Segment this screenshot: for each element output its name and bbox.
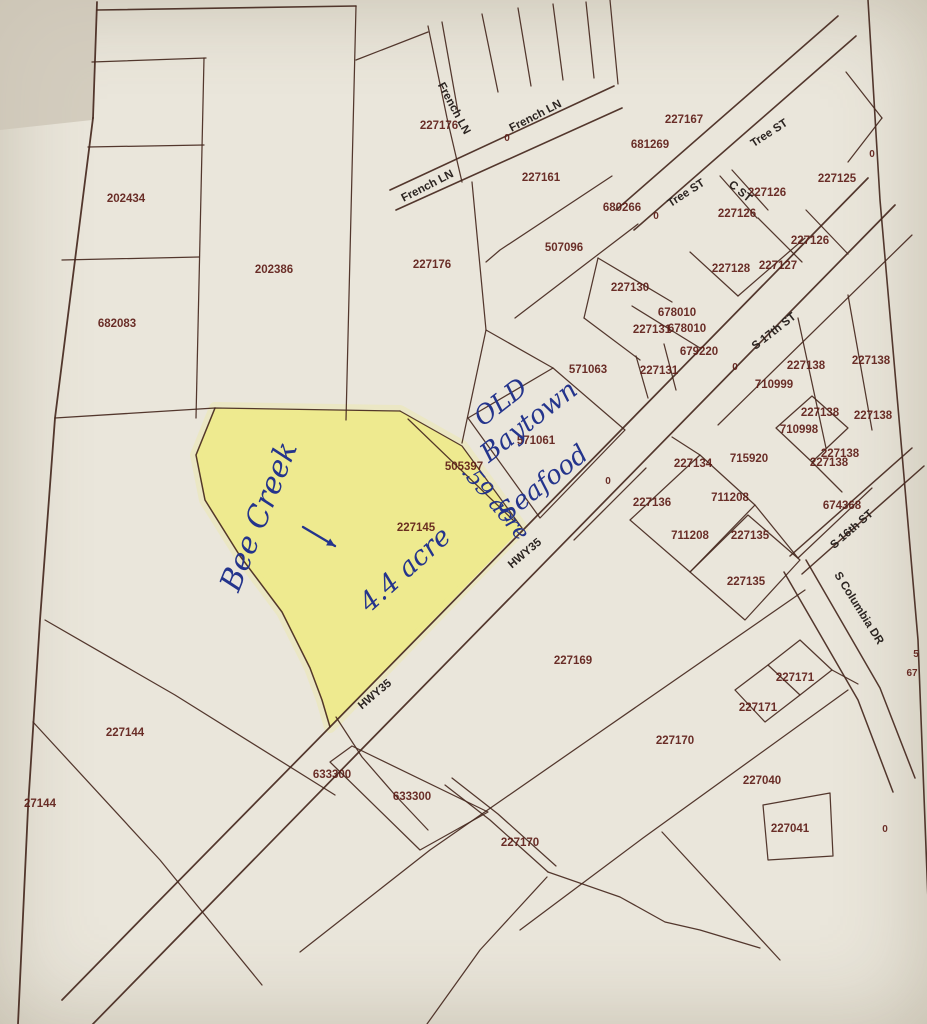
parcel-label: 227126 — [791, 235, 829, 247]
parcel-label: 227128 — [712, 263, 751, 275]
parcel-label: 711208 — [671, 530, 709, 542]
parcel-label: 710999 — [755, 379, 793, 391]
parcel-label: 678010 — [658, 307, 696, 319]
parcel-label: 0 — [653, 211, 659, 222]
parcel-label: 227131 — [633, 324, 672, 336]
parcel-label: 715920 — [730, 453, 768, 465]
parcel-boundary — [486, 330, 553, 368]
parcel-boundary — [832, 670, 858, 684]
parcel-label: 507096 — [545, 242, 583, 254]
parcel-label: 0 — [504, 133, 510, 144]
parcel-label: 227041 — [771, 823, 810, 835]
street-label: Tree ST — [666, 177, 707, 210]
parcel-label: 679220 — [680, 346, 718, 358]
parcel-label: 678010 — [668, 323, 706, 335]
parcel-boundary — [586, 2, 594, 78]
parcel-label: 227134 — [674, 458, 713, 470]
parcel-label: 227176 — [420, 120, 458, 132]
parcel-label: 227161 — [522, 172, 561, 184]
parcel-label: 227131 — [640, 365, 679, 377]
parcel-label: 633300 — [313, 769, 351, 781]
parcel-boundary — [806, 210, 848, 254]
parcel-label: 571063 — [569, 364, 607, 376]
parcel-boundary — [662, 832, 780, 960]
parcel-label: 227138 — [801, 407, 840, 419]
parcel-label: 227040 — [743, 775, 781, 787]
parcel-label: 202386 — [255, 264, 293, 276]
parcel-label: 227170 — [656, 735, 694, 747]
parcel-boundary — [598, 258, 672, 302]
parcel-label: 680266 — [603, 202, 641, 214]
street-label: Tree ST — [749, 117, 790, 150]
road-edge — [806, 560, 915, 778]
parcel-boundary — [427, 877, 547, 1024]
parcel-label: 0 — [882, 824, 888, 835]
creek-line — [452, 778, 556, 866]
parcel-label: 227135 — [731, 530, 770, 542]
parcel-label: 681269 — [631, 139, 669, 151]
street-label: S 17th ST — [750, 311, 799, 353]
parcel-label: 227138 — [810, 457, 849, 469]
parcel-label: 227144 — [106, 727, 145, 739]
parcel-boundary — [346, 6, 356, 420]
parcel-boundary — [88, 145, 204, 147]
parcel-label: 227127 — [759, 260, 797, 272]
parcel-boundary — [520, 690, 848, 930]
street-label: French LN — [508, 98, 564, 135]
parcel-label: 227126 — [748, 187, 786, 199]
parcel-label: 227171 — [776, 672, 815, 684]
parcel-label: 227125 — [818, 173, 857, 185]
parcel-label: 633300 — [393, 791, 431, 803]
parcel-boundary — [518, 8, 531, 86]
parcel-label: 227167 — [665, 114, 703, 126]
map-border — [868, 0, 927, 900]
street-label: C ST — [726, 179, 754, 205]
parcel-label: 227138 — [854, 410, 893, 422]
parcel-label: 227169 — [554, 655, 592, 667]
parcel-boundary — [482, 14, 498, 92]
parcel-label: 5 — [913, 649, 919, 660]
parcel-label: 227136 — [633, 497, 671, 509]
parcel-label: 710998 — [780, 424, 819, 436]
map-border — [18, 118, 93, 1024]
parcel-label: 227171 — [739, 702, 778, 714]
parcel-boundary — [636, 356, 648, 398]
parcel-boundary — [62, 257, 199, 260]
parcel-boundary — [553, 4, 563, 80]
road-edge — [616, 16, 838, 210]
parcel-label: 227135 — [727, 576, 766, 588]
parcel-label: 227170 — [501, 837, 539, 849]
parcel-map-photo: 2024346820832023862271762271760227161507… — [0, 0, 927, 1024]
parcel-label: 27144 — [24, 798, 57, 810]
parcel-label: 227138 — [852, 355, 891, 367]
parcel-map: 2024346820832023862271762271760227161507… — [0, 0, 927, 1024]
parcel-label: 227138 — [787, 360, 826, 372]
parcel-label: 0 — [605, 476, 611, 487]
road-edge — [62, 178, 868, 1000]
street-label: S 16th ST — [828, 508, 875, 551]
parcel-label: 227126 — [718, 208, 756, 220]
photo-corner-shadow — [0, 0, 96, 130]
parcel-label: 0 — [869, 149, 875, 160]
parcel-label: 674368 — [823, 500, 862, 512]
parcel-boundary — [548, 872, 760, 948]
parcel-boundary — [196, 58, 204, 418]
parcel-boundary — [584, 318, 640, 360]
parcel-boundary — [33, 722, 262, 985]
parcel-label: 202434 — [107, 193, 146, 205]
parcel-boundary — [584, 258, 598, 318]
parcel-boundary — [45, 620, 335, 795]
parcel-boundary — [356, 32, 428, 60]
parcel-label: 67 — [906, 668, 918, 679]
parcel-label: 0 — [732, 362, 738, 373]
parcel-boundary — [672, 437, 700, 455]
street-label: S Columbia DR — [831, 570, 886, 647]
parcel-boundary — [610, 0, 618, 84]
parcel-boundary — [630, 455, 755, 572]
parcel-label: 711208 — [711, 492, 749, 504]
parcel-label: 227176 — [413, 259, 451, 271]
road-edge — [390, 86, 614, 190]
parcel-label: 682083 — [98, 318, 136, 330]
parcel-label: 227130 — [611, 282, 649, 294]
map-border — [97, 6, 356, 10]
parcel-boundary — [846, 72, 882, 118]
parcel-boundary — [92, 58, 206, 62]
